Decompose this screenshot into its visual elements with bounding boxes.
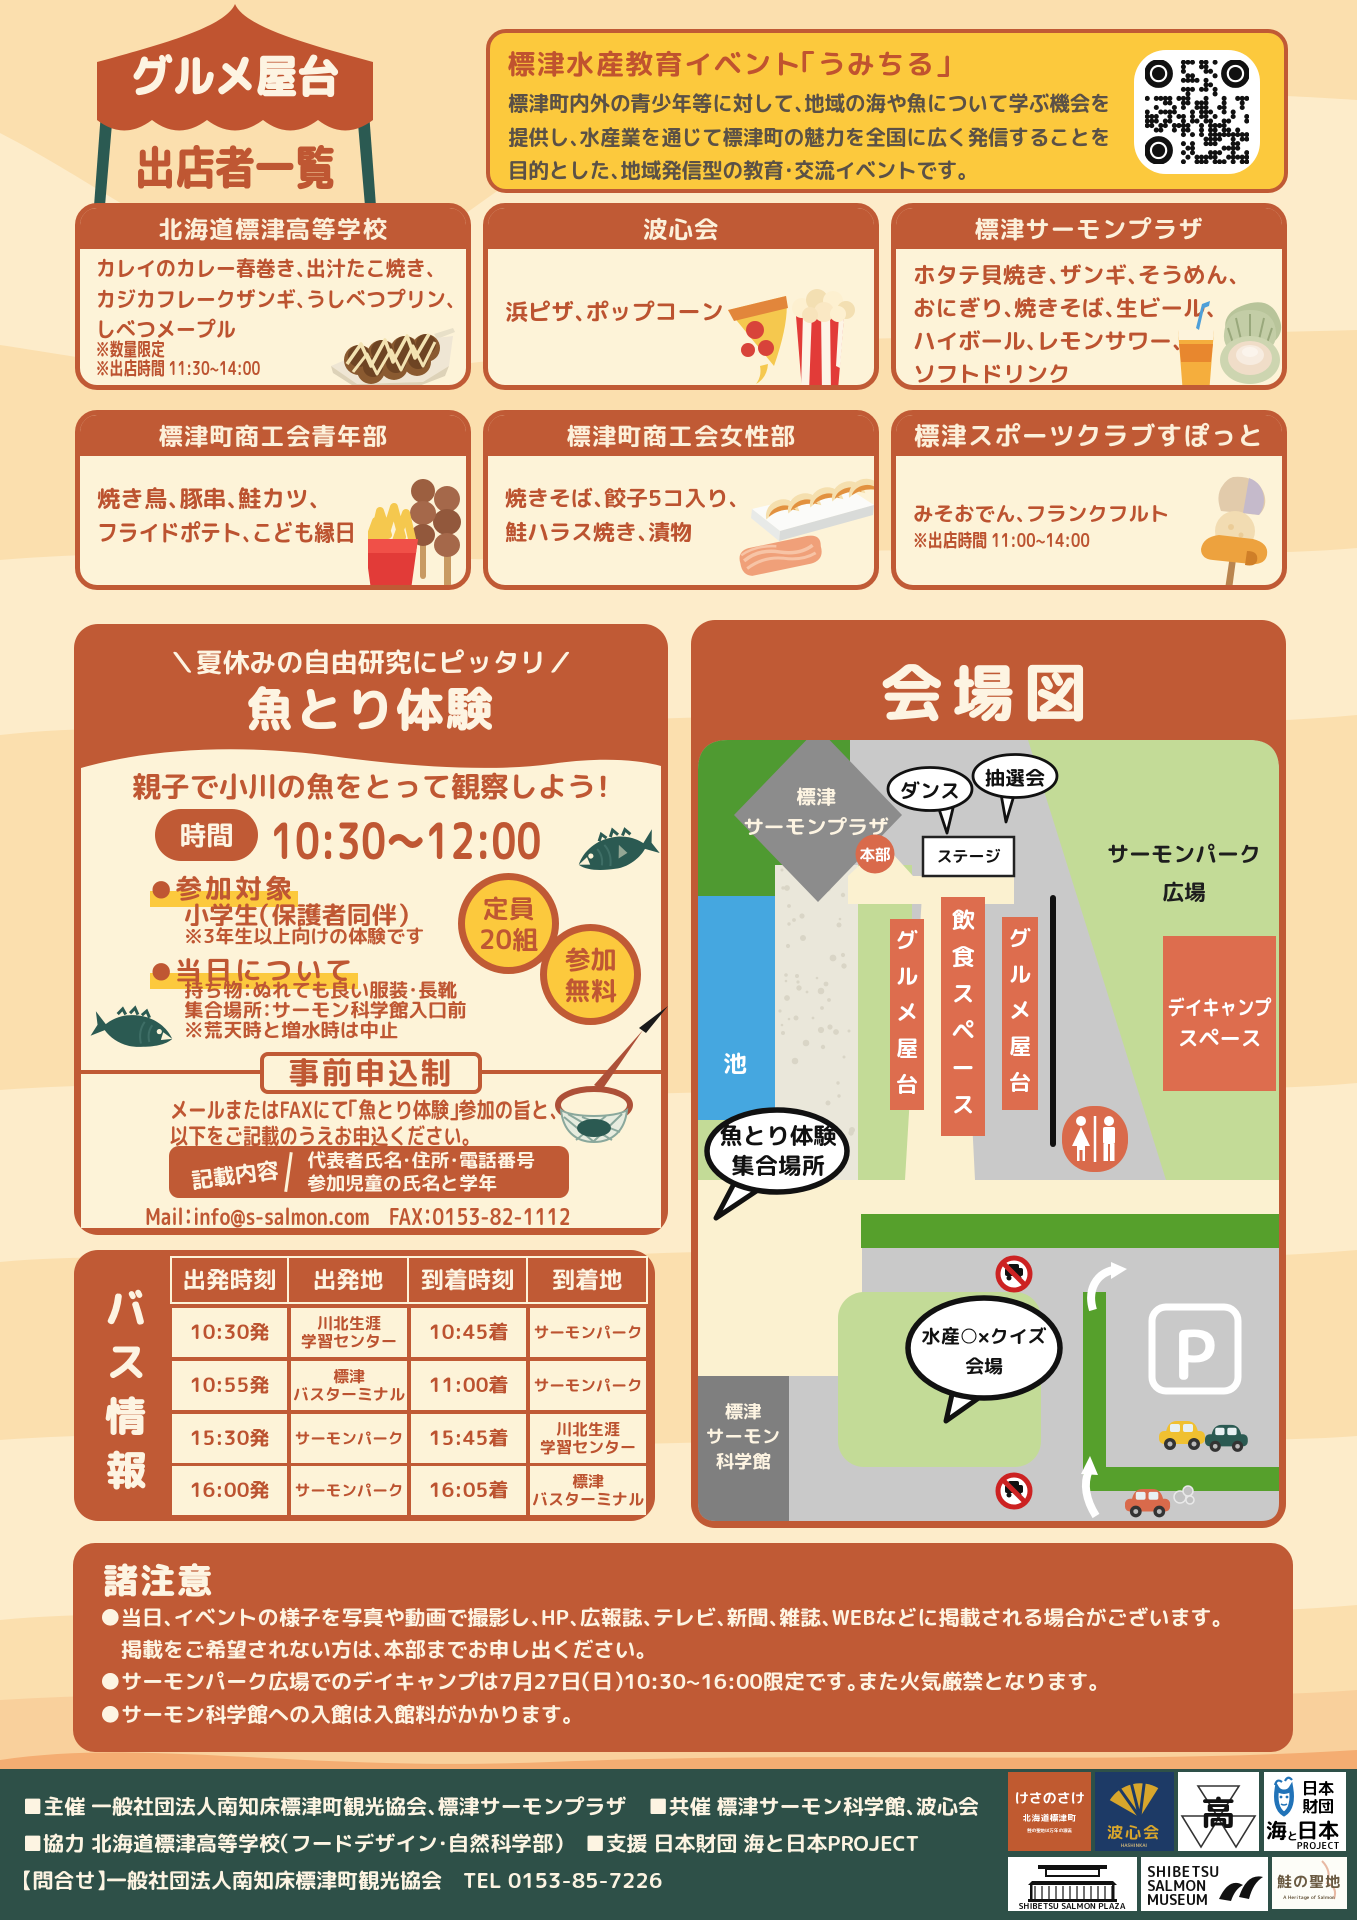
svg-text:メ: メ: [896, 997, 918, 1028]
svg-text:ス: ス: [952, 978, 975, 1010]
svg-text:グルメ屋台: グルメ屋台: [131, 45, 339, 107]
svg-text:グ: グ: [896, 925, 918, 956]
svg-text:台: 台: [896, 1069, 918, 1100]
svg-text:グ: グ: [1009, 923, 1031, 954]
svg-text:台: 台: [1009, 1067, 1031, 1098]
svg-text:ステージ: ステージ: [936, 846, 1000, 868]
svg-text:ダンス: ダンス: [900, 777, 960, 805]
svg-text:MUSEUM: MUSEUM: [1147, 1889, 1208, 1910]
svg-text:本部: 本部: [859, 843, 890, 865]
svg-text:食: 食: [952, 941, 975, 973]
svg-text:ー: ー: [952, 1052, 975, 1084]
svg-text:SHIBETSU SALMON PLAZA: SHIBETSU SALMON PLAZA: [1019, 1900, 1126, 1911]
svg-text:PROJECT: PROJECT: [1297, 1839, 1340, 1851]
svg-text:波心会: 波心会: [1107, 1822, 1161, 1844]
svg-text:水産○×クイズ: 水産○×クイズ: [921, 1324, 1046, 1350]
svg-text:広場: 広場: [1162, 877, 1206, 908]
svg-text:池: 池: [723, 1046, 747, 1080]
svg-text:高: 高: [1202, 1788, 1236, 1836]
svg-text:会場: 会場: [965, 1354, 1003, 1380]
svg-text:標津: 標津: [724, 1398, 762, 1424]
svg-text:屋: 屋: [896, 1033, 918, 1064]
svg-text:屋: 屋: [1009, 1031, 1031, 1062]
svg-text:HASHINKAI: HASHINKAI: [1121, 1842, 1148, 1849]
svg-text:鮭の聖地: 鮭の聖地: [1277, 1871, 1341, 1892]
svg-text:A Heritage of Salmon: A Heritage of Salmon: [1283, 1894, 1335, 1901]
svg-text:ル: ル: [1009, 959, 1031, 990]
svg-text:標津: 標津: [796, 783, 836, 811]
svg-text:ペ: ペ: [952, 1015, 975, 1047]
svg-text:サーモンパーク: サーモンパーク: [1107, 839, 1261, 870]
svg-text:スペース: スペース: [1178, 1023, 1262, 1053]
svg-text:魚とり体験: 魚とり体験: [719, 1119, 837, 1152]
svg-text:ス: ス: [952, 1089, 975, 1121]
svg-text:P: P: [1174, 1307, 1217, 1402]
svg-text:抽選会: 抽選会: [985, 764, 1045, 792]
svg-text:科学館: 科学館: [715, 1448, 771, 1474]
svg-text:メ: メ: [1009, 995, 1031, 1026]
svg-text:飲: 飲: [952, 904, 975, 936]
svg-text:サーモン: サーモン: [706, 1423, 780, 1449]
svg-text:海: 海: [1266, 1815, 1287, 1845]
svg-text:デイキャンプ: デイキャンプ: [1168, 992, 1272, 1022]
svg-text:集合場所: 集合場所: [731, 1149, 825, 1182]
svg-text:ル: ル: [896, 961, 918, 992]
